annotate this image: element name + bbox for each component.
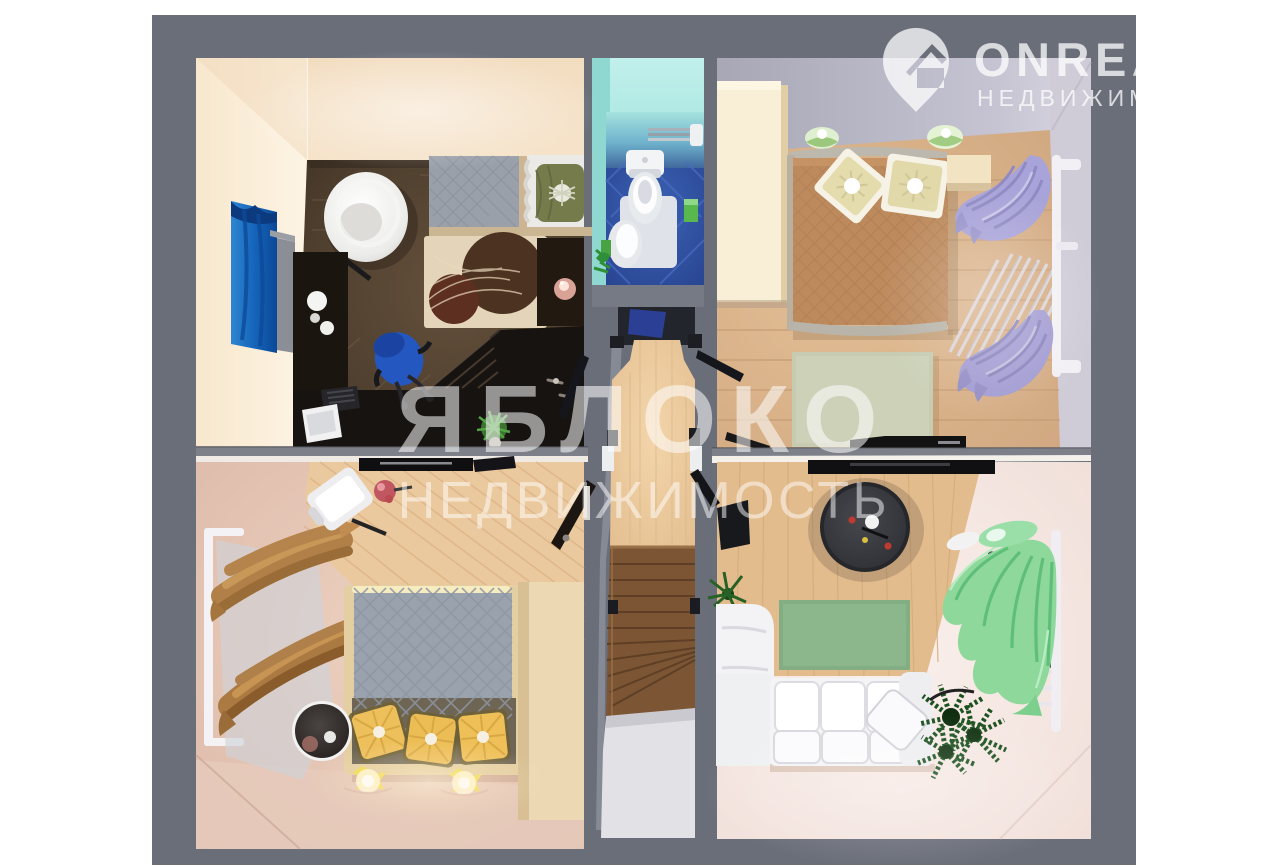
svg-text:НЕДВИЖИМОСТЬ: НЕДВИЖИМОСТЬ xyxy=(398,472,890,530)
svg-text:ONREALT: ONREALT xyxy=(974,33,1236,86)
svg-text:НЕДВИЖИМОСТЬ: НЕДВИЖИМОСТЬ xyxy=(977,85,1236,111)
svg-text:ЯБЛОКО: ЯБЛОКО xyxy=(397,366,892,473)
